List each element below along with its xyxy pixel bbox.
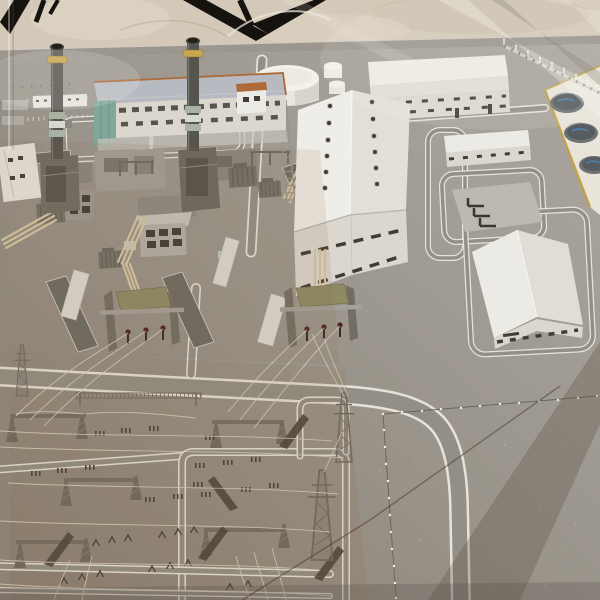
model-photo	[0, 0, 600, 600]
fuel-tank	[564, 123, 598, 143]
power-plant-model-scene	[0, 0, 600, 600]
